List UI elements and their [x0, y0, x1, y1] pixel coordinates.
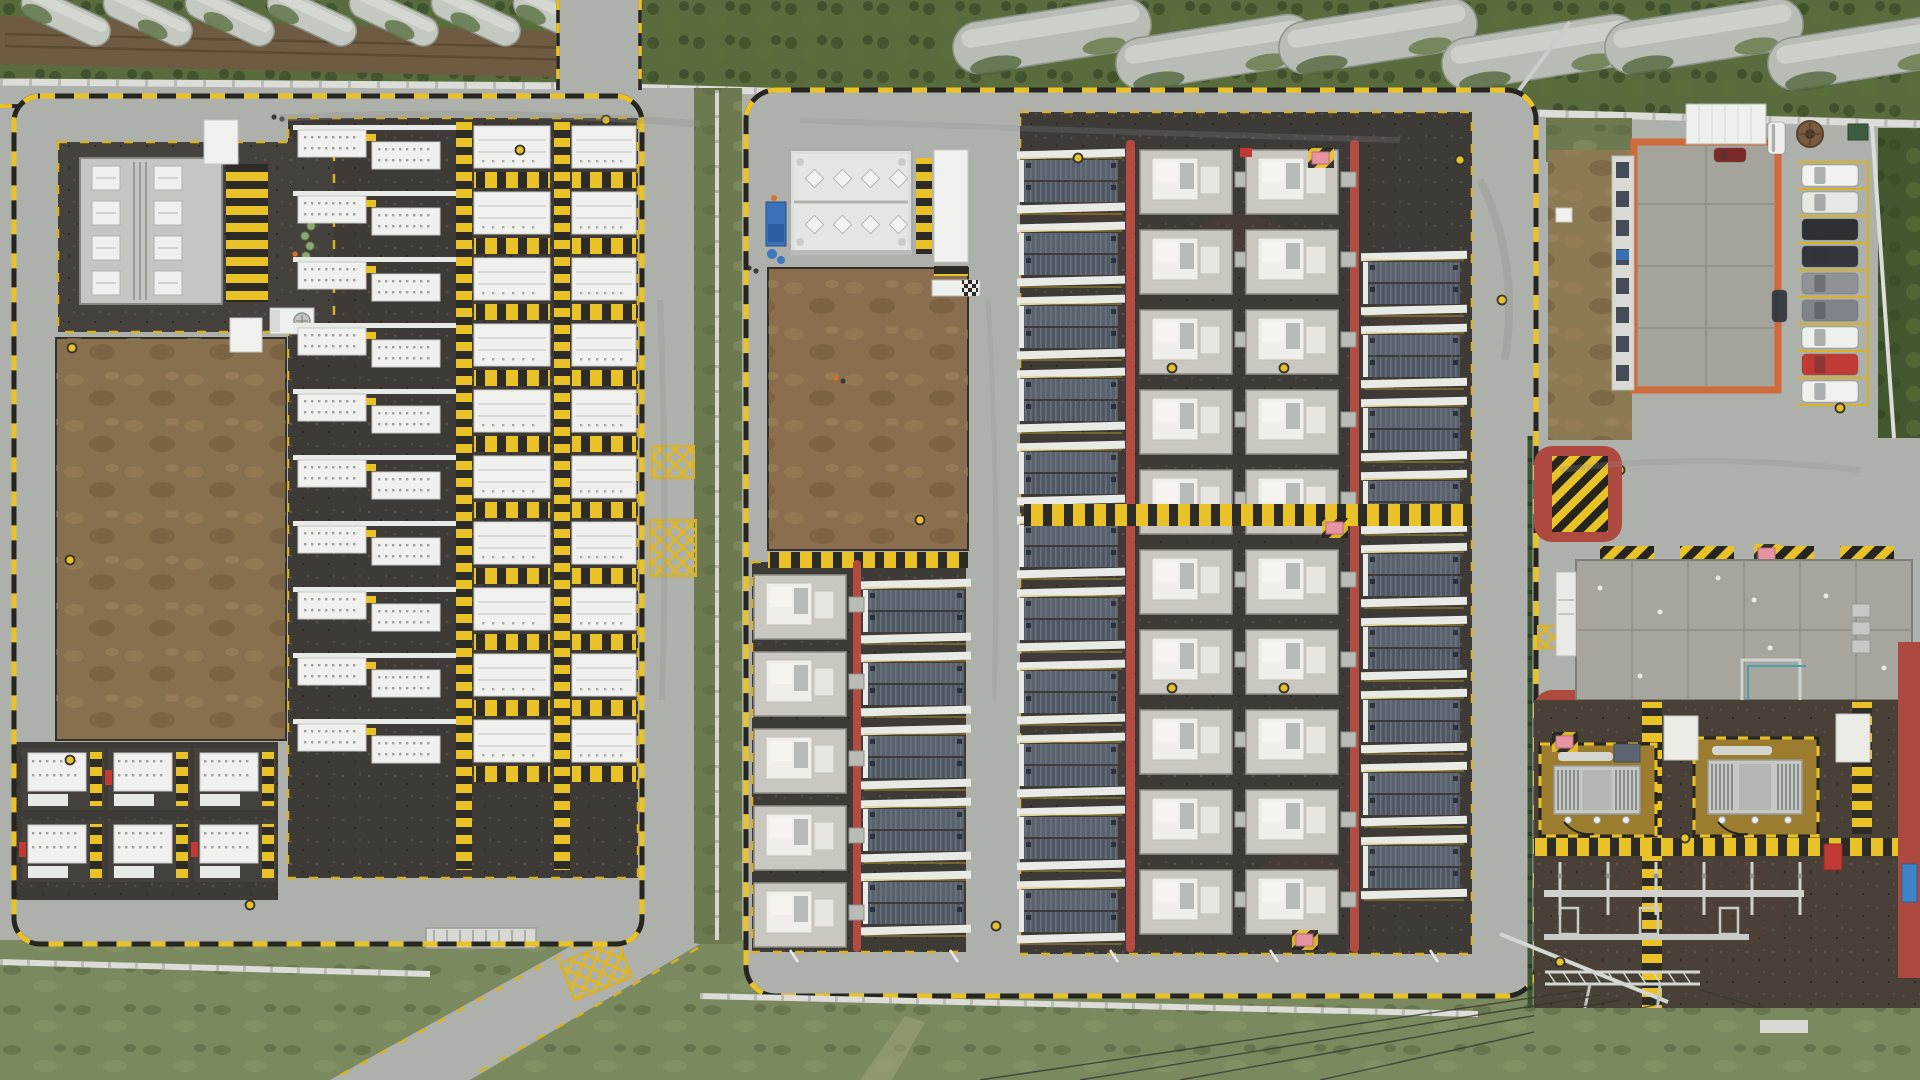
cable-reel	[1797, 121, 1823, 147]
equipment-container	[204, 120, 238, 164]
dumpster	[1848, 124, 1868, 140]
large-container-row	[572, 126, 636, 188]
parked-car	[1802, 354, 1858, 375]
storage-container	[1686, 104, 1766, 144]
window	[1616, 278, 1629, 294]
large-container-row	[572, 258, 636, 320]
no-stop-hatch	[652, 446, 694, 478]
large-container-row	[474, 588, 550, 650]
fire-cabinet	[105, 770, 112, 785]
window	[1616, 365, 1629, 381]
main-transformer-2	[1694, 738, 1818, 836]
large-container-row	[474, 654, 550, 716]
white-cabinet	[1664, 716, 1698, 760]
office-building	[1634, 142, 1778, 390]
large-container-row	[474, 258, 550, 320]
bollard	[1168, 684, 1177, 693]
red-edge-strip	[1898, 642, 1920, 978]
bollard	[516, 146, 525, 155]
bollard	[68, 344, 77, 353]
truck-with-module	[932, 280, 980, 296]
fire-extinguisher-box	[1556, 736, 1573, 748]
parked-car	[1802, 246, 1858, 267]
container-pad	[194, 748, 276, 810]
large-container-row	[474, 456, 550, 518]
container-pad	[19, 820, 104, 882]
white-cabinet	[1836, 714, 1870, 762]
container-pad	[22, 748, 104, 810]
parked-car	[1802, 192, 1858, 213]
window	[1616, 191, 1629, 207]
parked-car	[1802, 327, 1858, 348]
left-compound	[14, 96, 642, 948]
container-pad	[105, 748, 190, 810]
fire-cabinet	[19, 842, 26, 857]
pump-shed	[1614, 744, 1640, 762]
small-container	[230, 318, 262, 352]
north-gate-road	[556, 0, 642, 92]
office-facade	[1612, 156, 1634, 390]
large-container-row	[572, 588, 636, 650]
large-container-row	[572, 390, 636, 452]
fire-cabinet	[1824, 844, 1842, 870]
substation-building	[1556, 560, 1912, 700]
fire-extinguisher-box	[1758, 548, 1775, 560]
large-container-row	[572, 192, 636, 254]
bollard	[246, 901, 255, 910]
bollard	[1836, 404, 1845, 413]
corridor-road	[642, 88, 694, 944]
parked-car	[1714, 148, 1746, 162]
bollard	[916, 516, 925, 525]
large-container-row	[572, 324, 636, 386]
person	[753, 268, 758, 273]
internal-road	[966, 112, 1020, 954]
parked-car	[1802, 165, 1858, 186]
person	[833, 375, 838, 380]
no-stop-hatch	[650, 520, 696, 576]
bollard	[1456, 156, 1465, 165]
long-container	[934, 150, 968, 262]
bollard	[66, 756, 75, 765]
bollard	[1168, 364, 1177, 373]
rooftop-ac-unit	[1852, 604, 1870, 617]
window	[1616, 307, 1629, 323]
large-container-row	[474, 720, 550, 782]
fire-extinguisher-box	[1296, 934, 1313, 946]
striped-walkway	[1024, 504, 1472, 526]
bollard	[1280, 364, 1289, 373]
bollard	[1074, 154, 1083, 163]
container-pad	[108, 820, 190, 882]
large-container-row	[474, 390, 550, 452]
control-building	[790, 150, 912, 255]
rooftop-ac-unit	[1852, 640, 1870, 653]
bollard	[1556, 958, 1565, 967]
large-container-row	[572, 456, 636, 518]
fire-lane	[1126, 140, 1135, 952]
large-container-row	[572, 522, 636, 584]
parked-car	[1802, 381, 1858, 402]
window	[1616, 220, 1629, 236]
blue-sign	[1902, 864, 1917, 902]
parked-car	[1802, 273, 1858, 294]
large-container-row	[572, 720, 636, 782]
large-container-row	[474, 192, 550, 254]
bollard	[66, 556, 75, 565]
large-container-row	[474, 522, 550, 584]
fire-cabinet	[1240, 148, 1252, 157]
large-container-row	[474, 324, 550, 386]
parking-lot	[1798, 162, 1868, 405]
bollard	[992, 922, 1001, 931]
middle-compound	[746, 90, 1536, 996]
container-pad	[191, 820, 276, 882]
person	[271, 114, 276, 119]
fire-cabinet	[191, 842, 198, 857]
window	[1616, 162, 1629, 178]
bollard	[1280, 684, 1289, 693]
parked-car	[1768, 122, 1785, 154]
fire-extinguisher-box	[1326, 522, 1343, 534]
large-container-row	[474, 126, 550, 188]
parked-car	[1802, 219, 1858, 240]
fire-extinguisher-box	[1312, 152, 1329, 164]
parked-car	[1772, 290, 1787, 322]
aerial-photo-canvas	[0, 0, 1920, 1080]
parked-car	[1802, 300, 1858, 321]
substation-platform	[80, 158, 222, 304]
walkway-ladder	[554, 122, 570, 870]
aerial-photo	[0, 0, 1920, 1080]
window	[1616, 336, 1629, 352]
bollard	[1681, 834, 1690, 843]
rooftop-ac-unit	[1852, 622, 1870, 635]
large-container-row	[572, 654, 636, 716]
hazard-dock	[226, 164, 268, 302]
walkway-ladder	[456, 122, 472, 870]
person	[292, 251, 297, 256]
person	[840, 378, 845, 383]
